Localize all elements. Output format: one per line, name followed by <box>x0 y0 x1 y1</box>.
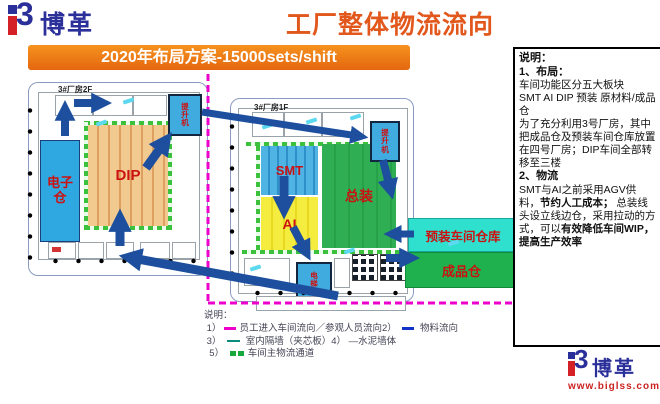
notes-section2-heading: 2、物流 <box>519 170 657 184</box>
elevator-label: 电梯 <box>310 272 318 289</box>
zone-electronics-warehouse: 电子仓 <box>40 140 80 242</box>
zone-ai: AI <box>261 197 318 250</box>
preassembly-warehouse-label: 预装车间仓库 <box>425 226 500 245</box>
zone-dip-label: DIP <box>115 167 140 184</box>
lift-right-box: 提升机 <box>370 121 400 162</box>
canopy <box>256 296 406 311</box>
room <box>55 95 93 116</box>
footer-logo-icon: 3 <box>568 352 588 376</box>
notes-line: 为了充分利用3号厂房，其中把成品仓及预装车间仓库放置在四号厂房；DIP车间全部转… <box>519 118 657 170</box>
lift-left-box: 提升机 <box>168 94 202 136</box>
preassembly-warehouse-box: 预装车间仓库 <box>408 218 518 252</box>
legend: 说明： 1）员工进入车间流向／参观人员流向2） 物料流向 3） 室内隔墙（夹芯板… <box>204 310 534 361</box>
lift-left-label: 提升机 <box>181 103 189 128</box>
blue-flow-swatch-icon <box>402 327 414 330</box>
footer-url: www.biglss.com <box>568 381 660 392</box>
green-channel-swatch-icon <box>230 351 245 356</box>
room <box>140 242 170 259</box>
notes-line: 车间功能区分五大板块 <box>519 79 657 92</box>
lift-right-label: 提升机 <box>381 129 389 154</box>
logistics-channel <box>168 121 172 230</box>
storage-racks <box>352 254 378 281</box>
column-markers <box>229 116 235 292</box>
slide: 3 博革 工厂整体物流流向 2020年布局方案-15000sets/shift … <box>0 0 660 404</box>
legend-title: 说明： <box>204 310 534 323</box>
room <box>106 242 134 259</box>
zone-smt: SMT <box>261 146 318 195</box>
logo-icon: 3 <box>8 5 34 35</box>
column-markers <box>44 258 202 264</box>
column-markers <box>246 290 404 296</box>
company-logo: 3 博革 <box>8 5 94 41</box>
room <box>334 258 350 288</box>
layout-plan-banner: 2020年布局方案-15000sets/shift <box>28 45 410 70</box>
zone-dip: DIP <box>88 125 168 226</box>
zone-ai-label: AI <box>283 216 297 232</box>
logistics-channel <box>256 146 260 250</box>
notes-title: 说明： <box>519 52 657 66</box>
logistics-channel <box>85 226 171 230</box>
room <box>172 242 196 259</box>
notes-line: SMT AI DIP 预装 原材料/成品仓 <box>519 92 657 118</box>
zone-electronics-warehouse-label: 电子仓 <box>46 176 74 206</box>
room <box>133 95 167 116</box>
equipment-mark <box>52 247 61 252</box>
teal-wall-swatch-icon <box>227 340 240 342</box>
footer-logo: 3 博革 www.biglss.com <box>568 352 660 392</box>
footer-logo-text: 博革 <box>592 352 636 381</box>
room <box>78 242 104 259</box>
notes-panel: 说明： 1、布局： 车间功能区分五大板块 SMT AI DIP 预装 原材料/成… <box>513 47 660 347</box>
column-markers <box>27 100 33 266</box>
finished-goods-warehouse-box: 成品仓 <box>405 252 518 288</box>
logo-text: 博革 <box>40 5 94 41</box>
building-left-name: 3#厂房2F <box>58 84 92 95</box>
zone-smt-label: SMT <box>276 163 303 178</box>
finished-goods-warehouse-label: 成品仓 <box>442 261 481 280</box>
notes-section2-body: SMT与AI之前采用AGV供料，节约人工成本； 总装线头设立线边仓，采用拉动的方… <box>519 184 657 249</box>
room <box>284 112 322 137</box>
room <box>244 258 290 286</box>
legend-row-1: 1）员工进入车间流向／参观人员流向2） 物料流向 <box>204 323 534 336</box>
legend-row-3: 5） 车间主物流通道 <box>204 348 534 361</box>
notes-section1-heading: 1、布局： <box>519 66 657 80</box>
zone-assembly-label: 总装 <box>345 186 373 206</box>
magenta-flow-swatch-icon <box>224 327 236 330</box>
page-title: 工厂整体物流流向 <box>286 5 494 41</box>
legend-row-2: 3） 室内隔墙（夹芯板）4） —水泥墙体 <box>204 336 534 349</box>
storage-racks <box>380 254 406 281</box>
